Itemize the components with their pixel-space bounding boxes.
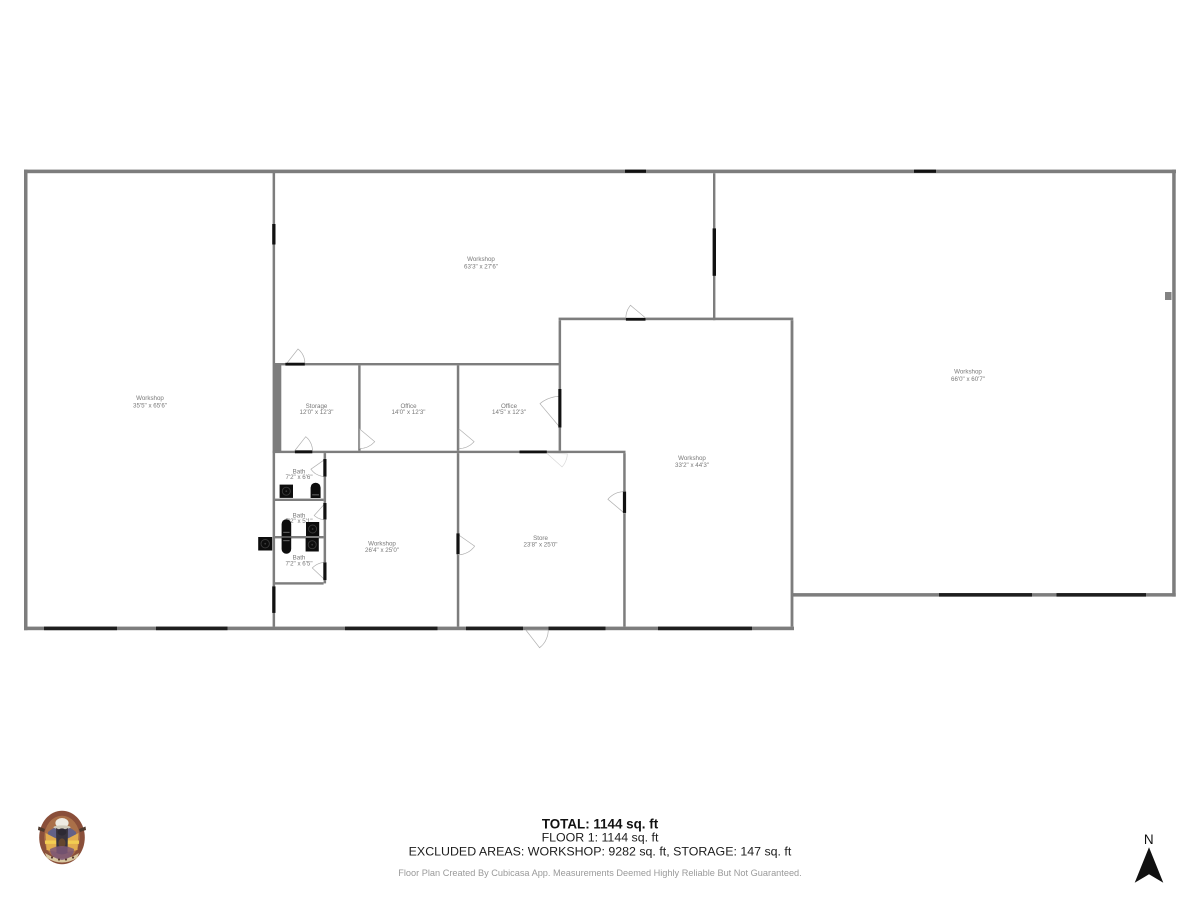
svg-text:23'8" x 25'0": 23'8" x 25'0" <box>524 541 558 548</box>
svg-text:14'0" x 12'3": 14'0" x 12'3" <box>392 409 426 416</box>
svg-text:EXCLUDED AREAS: WORKSHOP: 9282: EXCLUDED AREAS: WORKSHOP: 9282 sq. ft, S… <box>409 844 792 858</box>
svg-text:35'5" x 65'6": 35'5" x 65'6" <box>133 403 167 410</box>
svg-text:26'4" x 25'0": 26'4" x 25'0" <box>365 547 399 554</box>
svg-text:FLOOR 1: 1144 sq. ft: FLOOR 1: 1144 sq. ft <box>542 831 659 845</box>
svg-text:7'2" x 6'6": 7'2" x 6'6" <box>285 474 312 481</box>
svg-text:Workshop: Workshop <box>136 395 164 402</box>
svg-text:14'5" x 12'3": 14'5" x 12'3" <box>492 409 526 416</box>
svg-text:Workshop: Workshop <box>678 455 706 462</box>
svg-text:66'0" x 60'7": 66'0" x 60'7" <box>951 376 985 383</box>
svg-text:TOTAL: 1144 sq. ft: TOTAL: 1144 sq. ft <box>542 817 659 832</box>
svg-text:12'0" x 12'3": 12'0" x 12'3" <box>300 409 334 416</box>
svg-text:Workshop: Workshop <box>467 256 495 263</box>
svg-text:63'3" x 27'6": 63'3" x 27'6" <box>464 264 498 271</box>
svg-text:33'2" x 44'3": 33'2" x 44'3" <box>675 462 709 469</box>
svg-text:7'2" x 6'5": 7'2" x 6'5" <box>285 561 312 568</box>
svg-text:Workshop: Workshop <box>954 368 982 375</box>
svg-text:N: N <box>1144 832 1154 847</box>
svg-text:Floor Plan Created By Cubicasa: Floor Plan Created By Cubicasa App. Meas… <box>398 868 801 878</box>
